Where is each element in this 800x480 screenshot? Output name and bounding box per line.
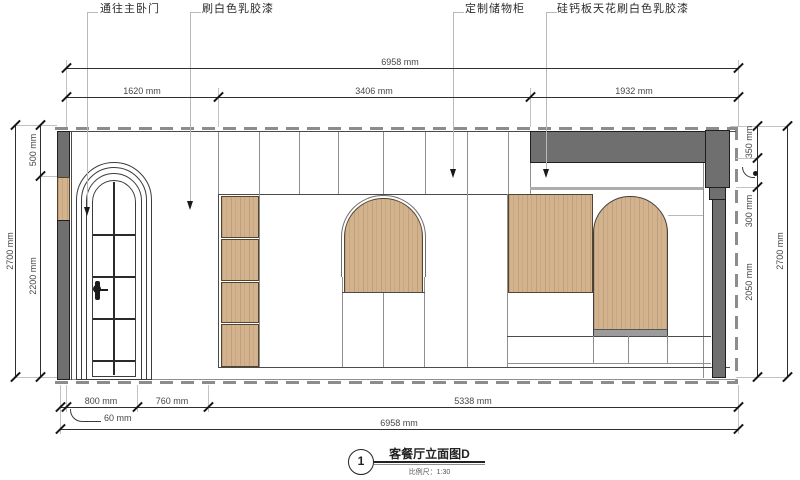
right-cut-dashed-line [735,127,738,384]
dim-extension-line [40,176,57,177]
upper-cabinet-divider [508,132,509,194]
base-cabinet-divider [593,336,594,363]
drawing-scale: 比例尺：1:30 [374,467,485,477]
base-cabinet-divider [667,336,668,363]
door-mullion-horizontal [93,318,135,320]
drawing-title: 客餐厅立面图D [374,445,485,462]
wall-corner-line [703,163,704,378]
callout-ceiling-label: 硅钙板天花刷白色乳胶漆 [557,3,689,15]
dim-line-top-total [66,68,738,69]
callout-leader [546,12,557,13]
tall-arch-wood-panel [593,196,668,336]
cabinet-side-line [259,194,260,367]
ceiling-trim-strip [530,187,704,190]
title-underline-thin [374,464,485,465]
dim-extension-line [736,377,787,378]
ceiling-cut-dashed-line [55,127,736,130]
lower-door-split-line [383,293,384,367]
tall-door-divider [467,194,468,367]
dim-line-bottom-segments [60,407,738,408]
arch-base-plinth [594,329,667,336]
right-column-shaft [712,199,726,378]
upper-cabinet-divider [259,132,260,194]
callout-cabinet-label: 定制储物柜 [465,3,525,15]
callout-door-label: 通往主卧门 [100,3,160,15]
dim-label: 1932 mm [574,86,694,96]
wood-cabinet-door [221,239,259,281]
callout-arrow [84,207,90,216]
base-cabinet-bottom-line [507,363,711,364]
upper-cabinet-divider [425,132,426,194]
base-cabinet-top-line [507,336,711,337]
door-handle-lever [100,289,108,291]
callout-leader [453,12,454,170]
door-mullion-horizontal [93,234,135,236]
floor-line [57,379,736,380]
dim-label: 300 mm [743,171,755,251]
dim-label: 3406 mm [314,86,434,96]
ceiling-beam [530,131,730,163]
door-mullion-vertical [113,182,115,375]
wood-cabinet-door [221,282,259,323]
dim-label: 2050 mm [743,242,755,322]
upper-cabinet-divider [383,132,384,194]
callout-leader [190,12,201,13]
drawing-number-bubble: 1 [348,449,374,475]
left-wall-section-upper [57,131,70,178]
callout-leader [453,12,464,13]
dim-label: 350 mm [743,102,755,182]
dim-label: 5338 mm [413,396,533,406]
upper-cabinet-divider [338,132,339,194]
dim-label-left-total: 2700 mm [4,211,16,291]
wood-wall-panel [508,194,593,293]
door-mullion-horizontal [93,360,135,362]
cabinet-side-line [342,277,343,367]
dim-extension-line [15,377,57,378]
left-wall-section-lower [57,220,70,380]
upper-cabinet-divider [467,132,468,194]
dim-label-bottom-total: 6958 mm [339,418,459,428]
left-wall-wood-block [57,177,70,221]
wall-joint-line [668,215,703,216]
base-cabinet-divider [628,336,629,363]
callout-leader [546,12,547,170]
arch-wood-panel [344,198,423,293]
callout-leader [87,12,98,13]
dim-label: 1620 mm [82,86,202,96]
callout-leader [87,12,88,208]
wood-cabinet-door [221,196,259,238]
dim-line-left-segments [40,125,41,377]
dim-label: 500 mm [27,110,39,190]
callout-paint-label: 刷白色乳胶漆 [202,3,274,15]
callout-arrow [543,169,549,178]
dim-label-right-total: 2700 mm [774,211,786,291]
dim-line-top-segments [66,97,738,98]
cabinet-side-line [218,194,219,367]
dim-line-right-total [787,126,788,377]
callout-leader [190,12,191,202]
floor-cut-dashed-line [55,381,736,384]
title-underline-thick [374,461,485,463]
dim-label-top-total: 6958 mm [340,57,460,67]
callout-arrow [187,201,193,210]
callout-arrow [450,169,456,178]
offset-leader-curve [70,409,101,422]
wood-cabinet-door [221,324,259,367]
upper-cabinet-divider [218,132,219,194]
right-column-capital [705,130,730,188]
upper-cabinet-divider [299,132,300,194]
dim-label: 760 mm [112,396,232,406]
elevation-drawing-sheet: 通往主卧门 刷白色乳胶漆 定制储物柜 硅钙板天花刷白色乳胶漆 6958 mm 1… [0,0,800,480]
dim-label: 2200 mm [27,236,39,316]
dim-line-right-segments [757,126,758,377]
cabinet-floor-line [218,367,730,368]
dim-line-bottom-total [60,429,738,430]
cabinet-side-line [424,277,425,367]
door-mullion-horizontal [93,276,135,278]
dim-label-offset: 60 mm [104,413,132,423]
left-wall-finish-line [71,131,72,380]
